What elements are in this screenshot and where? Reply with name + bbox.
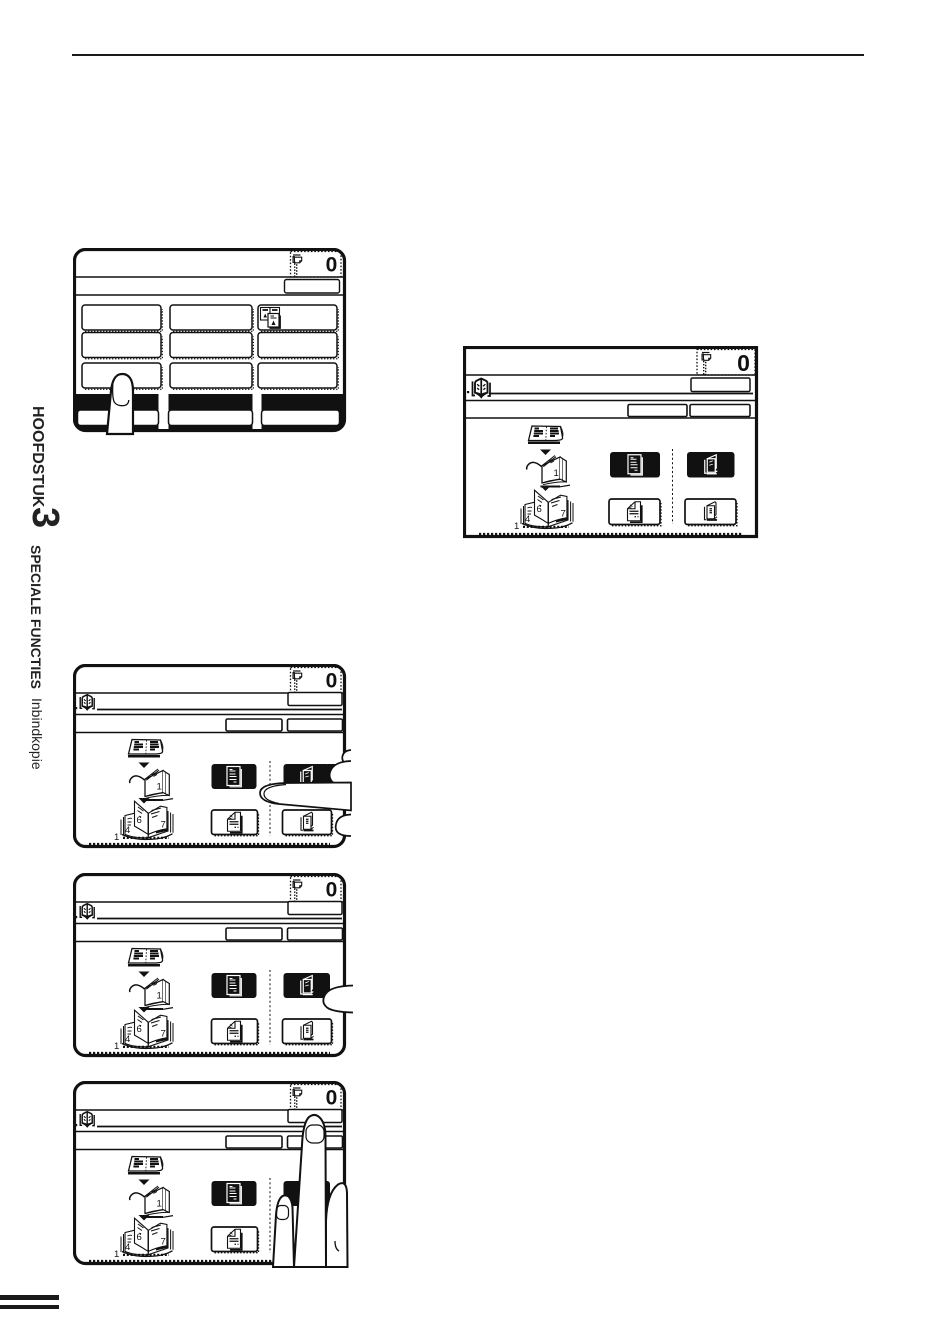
svg-text:1: 1 bbox=[554, 468, 559, 479]
svg-text:1: 1 bbox=[157, 782, 162, 793]
svg-text:6: 6 bbox=[537, 504, 542, 515]
svg-text:0: 0 bbox=[326, 879, 338, 902]
svg-text:4: 4 bbox=[125, 1242, 130, 1253]
svg-text:1: 1 bbox=[514, 521, 519, 532]
svg-text:6: 6 bbox=[137, 1232, 142, 1243]
svg-text:0: 0 bbox=[326, 670, 338, 693]
svg-text:4: 4 bbox=[125, 825, 130, 836]
svg-text:0: 0 bbox=[737, 350, 750, 376]
svg-text:1: 1 bbox=[157, 1199, 162, 1210]
svg-text:6: 6 bbox=[137, 815, 142, 826]
svg-text:7: 7 bbox=[161, 1029, 166, 1040]
svg-text:1: 1 bbox=[114, 1041, 119, 1052]
svg-text:1: 1 bbox=[157, 991, 162, 1002]
svg-text:0: 0 bbox=[326, 1087, 338, 1110]
svg-text:1: 1 bbox=[114, 832, 119, 843]
svg-text:4: 4 bbox=[125, 1034, 130, 1045]
svg-text:6: 6 bbox=[137, 1024, 142, 1035]
svg-text:7: 7 bbox=[161, 1237, 166, 1248]
svg-text:4: 4 bbox=[525, 514, 530, 525]
svg-text:7: 7 bbox=[561, 509, 566, 520]
svg-text:1: 1 bbox=[114, 1249, 119, 1260]
svg-text:7: 7 bbox=[161, 820, 166, 831]
svg-text:0: 0 bbox=[326, 254, 338, 277]
